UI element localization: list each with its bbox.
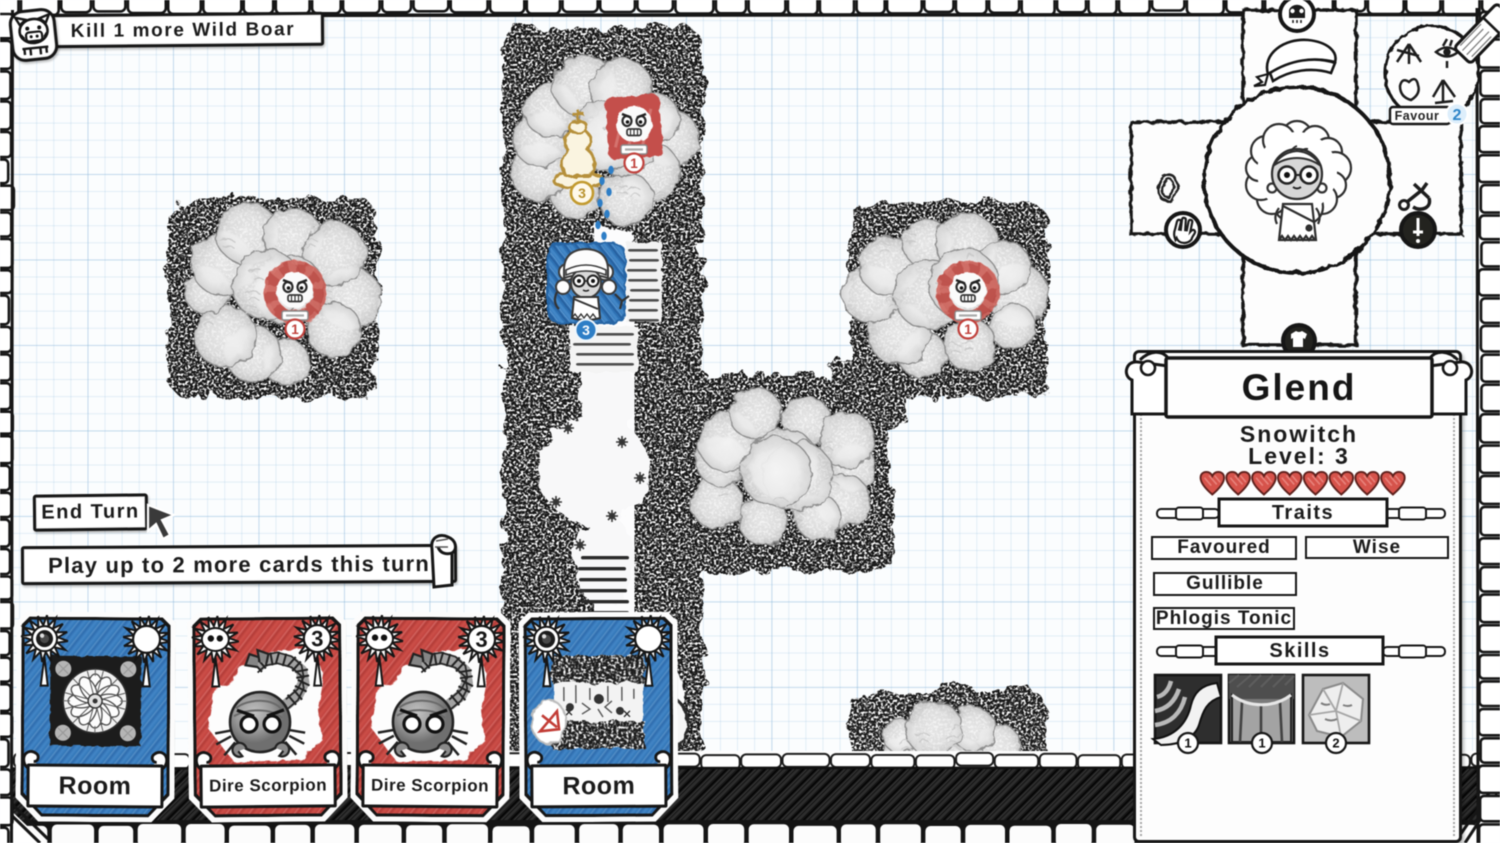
- svg-text:1: 1: [630, 156, 638, 171]
- svg-text:3: 3: [475, 627, 487, 652]
- svg-text:2: 2: [1453, 107, 1462, 124]
- svg-text:3: 3: [311, 626, 323, 651]
- svg-text:1: 1: [291, 322, 299, 337]
- svg-text:Favour: Favour: [1395, 109, 1440, 123]
- svg-text:3: 3: [582, 322, 590, 338]
- svg-text:3: 3: [578, 185, 586, 201]
- svg-text:1: 1: [964, 322, 972, 337]
